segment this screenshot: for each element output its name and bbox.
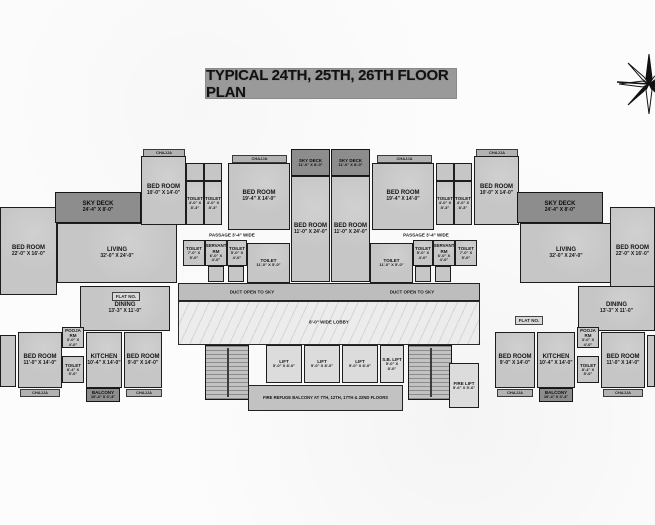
closet-left-a — [186, 163, 204, 181]
living-right: LIVING32'-0" X 24'-0" — [520, 223, 612, 283]
kitchen-right: KITCHEN10'-4" X 14'-0" — [537, 332, 575, 388]
toilet-right-a: TOILET4'-0" X 8'-3" — [436, 181, 454, 225]
pooja-rm-right: POOJA RM3'-0" X 4'-0" — [577, 327, 599, 348]
balcony-left: BALCONY10'-4" X 3'-4" — [86, 388, 120, 402]
chajja-bottom-left-1: CHAJJA — [20, 389, 60, 397]
dining-right: DINING13'-3" X 11'-0" — [578, 286, 655, 331]
bedroom-bottom-right-partial — [647, 335, 655, 387]
chajja-bottom-left-2: CHAJJA — [126, 389, 162, 397]
balcony-right: BALCONY10'-4" X 3'-4" — [539, 388, 573, 402]
fire-lift: FIRE LIFT5'-6" X 5'-6" — [449, 363, 479, 408]
chajja-top-right2: CHAJJA — [377, 155, 432, 163]
toilet-left-b: TOILET4'-0" X 8'-3" — [204, 181, 222, 225]
toilet-mid-right-1: TOILET5'-0" X 4'-0" — [413, 240, 433, 266]
lift-2: LIFT5'-0" X 8'-0" — [304, 345, 340, 383]
chajja-bottom-right-1: CHAJJA — [497, 389, 533, 397]
lift-1: LIFT5'-0" X 8'-0" — [266, 345, 302, 383]
store-right-b — [435, 266, 451, 282]
servant-rm-left: SERVANT RM6'-0" X 4'-0" — [205, 240, 227, 266]
kitchen-left: KITCHEN10'-4" X 14'-0" — [86, 332, 122, 388]
bedroom-10-left: BED ROOM10'-0" X 14'-0" — [141, 156, 186, 225]
bedroom-right-edge: BED ROOM22'-0" X 16'-0" — [610, 207, 655, 295]
store-left-a — [208, 266, 224, 282]
toilet-right-b: TOILET4'-0" X 8'-3" — [454, 181, 472, 225]
sb-lift: S.B. LIFT5'-0" X 8'-0" — [380, 345, 404, 383]
bedroom-24-center-2: BED ROOM11'-0" X 24'-0" — [331, 176, 370, 282]
bedroom-bottom-left-partial — [0, 335, 16, 387]
staircase-left — [205, 345, 249, 400]
floor-plan-sheet: TYPICAL 24TH, 25TH, 26TH FLOOR PLAN CHAJ… — [0, 0, 655, 525]
lobby-label: 8'-0" WIDE LOBBY — [309, 320, 349, 325]
store-left-b — [228, 266, 244, 282]
bedroom-19-left: BED ROOM19'-4" X 14'-0" — [228, 163, 290, 230]
living-left: LIVING32'-0" X 24'-0" — [57, 223, 177, 283]
bedroom-19-right: BED ROOM19'-4" X 14'-0" — [372, 163, 434, 230]
sky-deck-left: SKY DECK24'-4" X 8'-0" — [55, 192, 141, 223]
staircase-right — [408, 345, 452, 400]
floor-plan: CHAJJACHAJJACHAJJACHAJJABED ROOM22'-0" X… — [0, 0, 655, 525]
toilet-bottom-right: TOILET8'-4" X 5'-0" — [577, 356, 599, 383]
flat-no-right: FLAT NO. — [515, 316, 543, 325]
servant-rm-right: SERVANT RM6'-0" X 4'-0" — [433, 240, 455, 266]
passage-right-label: PASSAGE 3'-4" WIDE — [403, 233, 449, 238]
lift-3: LIFT5'-0" X 8'-0" — [342, 345, 378, 383]
chajja-top-left2: CHAJJA — [232, 155, 287, 163]
bedroom-9-bottom-right: BED ROOM9'-0" X 14'-0" — [495, 332, 535, 388]
sky-deck-right: SKY DECK24'-4" X 8'-0" — [517, 192, 603, 223]
closet-right-a — [436, 163, 454, 181]
flat-no-left: FLAT NO. — [112, 292, 140, 301]
bedroom-9-bottom-left: BED ROOM9'-0" X 14'-0" — [124, 332, 162, 388]
bedroom-24-center-1: BED ROOM11'-0" X 24'-0" — [291, 176, 330, 282]
toilet-left-a: TOILET4'-0" X 8'-3" — [186, 181, 204, 225]
passage-left-label: PASSAGE 3'-4" WIDE — [209, 233, 255, 238]
duct-left-label: DUCT OPEN TO SKY — [230, 290, 274, 295]
bedroom-left-edge: BED ROOM22'-0" X 16'-0" — [0, 207, 57, 295]
pooja-rm-left: POOJA RM3'-0" X 4'-0" — [62, 327, 84, 348]
toilet-mid-left-1: TOILET7'-0" X 5'-0" — [183, 240, 205, 266]
closet-right-b — [454, 163, 472, 181]
chajja-bottom-right-2: CHAJJA — [603, 389, 643, 397]
toilet-bottom-left: TOILET8'-4" X 5'-0" — [62, 356, 84, 383]
sky-deck-center-1: SKY DECK11'-0" X 8'-0" — [291, 149, 330, 176]
duct-right-label: DUCT OPEN TO SKY — [390, 290, 434, 295]
toilet-mid-left-2: TOILET5'-0" X 4'-0" — [227, 240, 247, 266]
fire-refuge-balcony: FIRE REFUGE BALCONY AT 7TH, 12TH, 17TH &… — [248, 385, 403, 411]
store-right-a — [415, 266, 431, 282]
duct-open-to-sky — [178, 283, 480, 301]
toilet-11-right: TOILET11'-0" X 5'-0" — [370, 243, 413, 283]
bedroom-11-bottom-right: BED ROOM11'-0" X 14'-0" — [601, 332, 645, 388]
bedroom-10-right: BED ROOM10'-0" X 14'-0" — [474, 156, 519, 225]
bedroom-11-bottom-left: BED ROOM11'-0" X 14'-0" — [18, 332, 62, 388]
closet-left-b — [204, 163, 222, 181]
sky-deck-center-2: SKY DECK11'-0" X 8'-0" — [331, 149, 370, 176]
toilet-mid-right-2: TOILET7'-0" X 5'-0" — [455, 240, 477, 266]
toilet-11-left: TOILET11'-0" X 5'-0" — [247, 243, 290, 283]
